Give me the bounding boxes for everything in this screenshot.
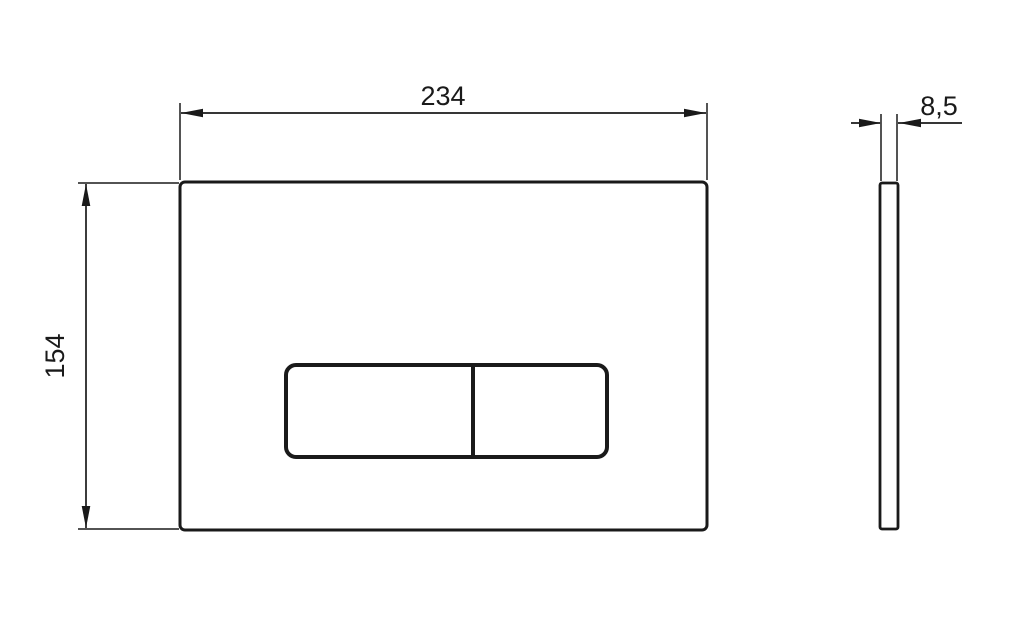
height-arrow-down-icon [82, 506, 91, 528]
side-profile-outline [880, 183, 898, 529]
thickness-dimension: 8,5 [851, 91, 962, 181]
flush-button-group-outline [286, 365, 607, 457]
thickness-dimension-label: 8,5 [920, 91, 958, 121]
thickness-arrow-left-icon [899, 119, 921, 128]
side-view [880, 183, 898, 529]
height-dimension-label: 154 [40, 333, 70, 378]
height-dimension: 154 [40, 183, 179, 529]
plate-outline [180, 182, 707, 530]
width-arrow-left-icon [181, 109, 203, 118]
thickness-arrow-right-icon [859, 119, 881, 128]
height-arrow-up-icon [82, 184, 91, 206]
technical-drawing: 234 154 8,5 [0, 0, 1024, 640]
width-dimension-label: 234 [420, 81, 465, 111]
front-view [180, 182, 707, 530]
technical-drawing-canvas: 234 154 8,5 [0, 0, 1024, 640]
width-arrow-right-icon [684, 109, 706, 118]
width-dimension: 234 [180, 81, 707, 180]
